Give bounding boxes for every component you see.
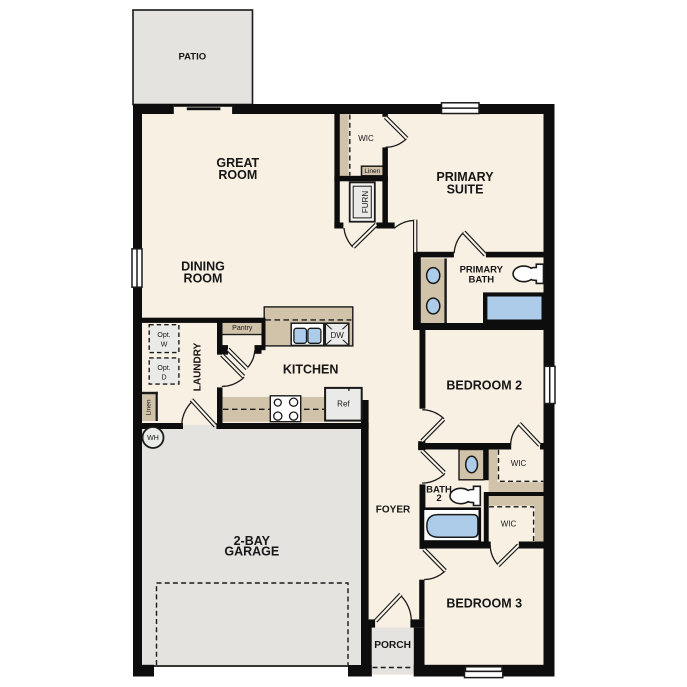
svg-text:WIC: WIC	[511, 459, 527, 468]
svg-text:D: D	[161, 374, 166, 381]
svg-text:GARAGE: GARAGE	[224, 545, 279, 559]
svg-text:SUITE: SUITE	[447, 183, 484, 197]
svg-text:KITCHEN: KITCHEN	[283, 362, 339, 376]
svg-text:Linen: Linen	[364, 168, 380, 175]
svg-text:Opt.: Opt.	[157, 332, 170, 339]
svg-text:FURN: FURN	[361, 191, 370, 213]
svg-text:ROOM: ROOM	[218, 168, 257, 182]
svg-text:PATIO: PATIO	[178, 52, 206, 63]
svg-text:WIC: WIC	[501, 520, 517, 529]
svg-text:WH: WH	[147, 435, 159, 442]
svg-text:Linen: Linen	[145, 399, 152, 415]
svg-text:Opt.: Opt.	[157, 365, 170, 372]
svg-text:BEDROOM 2: BEDROOM 2	[446, 379, 522, 393]
svg-text:ROOM: ROOM	[184, 271, 223, 285]
svg-text:LAUNDRY: LAUNDRY	[193, 342, 204, 391]
svg-text:W: W	[161, 341, 168, 348]
svg-text:DW: DW	[331, 331, 345, 340]
svg-text:WIC: WIC	[358, 134, 374, 143]
svg-text:Ref: Ref	[337, 400, 350, 409]
svg-text:FOYER: FOYER	[376, 505, 411, 516]
svg-text:BATH: BATH	[468, 275, 494, 286]
svg-text:BEDROOM 3: BEDROOM 3	[446, 596, 522, 610]
svg-text:2: 2	[436, 493, 441, 504]
svg-text:PORCH: PORCH	[374, 640, 411, 651]
svg-text:Pantry: Pantry	[232, 325, 253, 332]
